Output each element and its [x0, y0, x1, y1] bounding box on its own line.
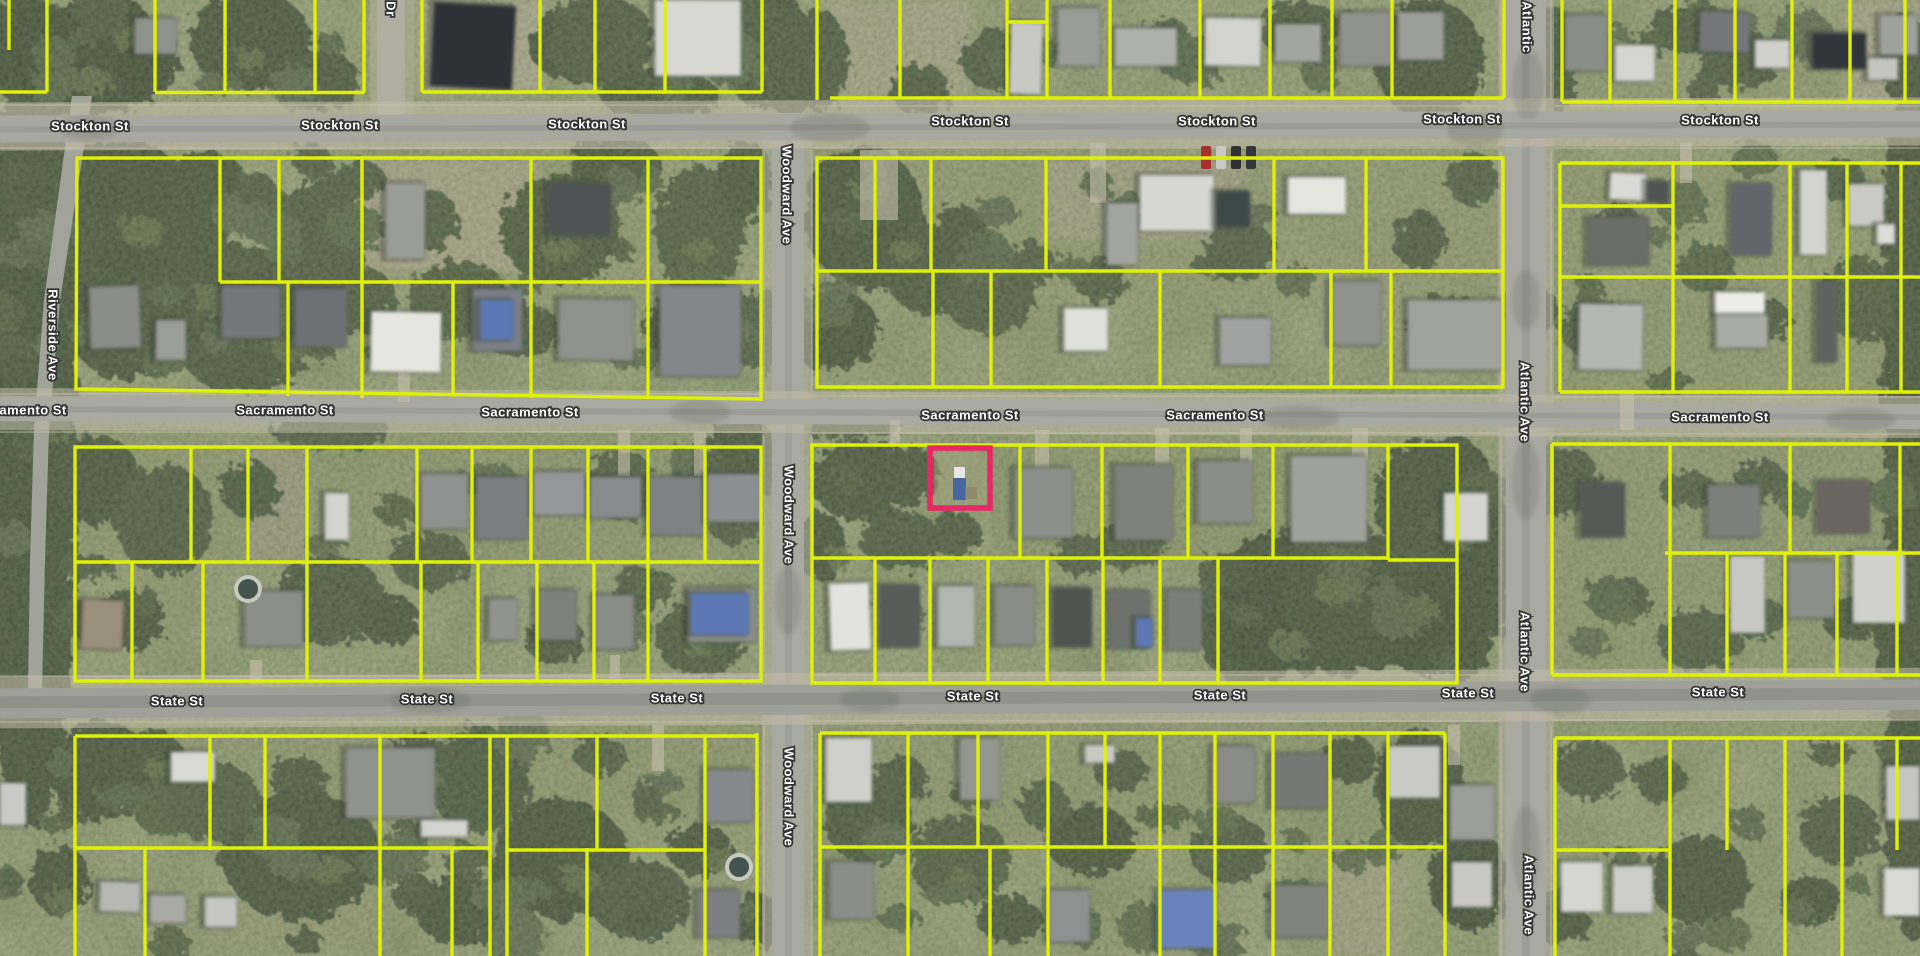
svg-text:State St: State St: [1692, 684, 1745, 699]
svg-text:e Dr: e Dr: [384, 0, 399, 17]
svg-text:Stockton St: Stockton St: [51, 118, 129, 133]
svg-text:Atlantic Ave: Atlantic Ave: [1518, 612, 1533, 692]
svg-text:Riverside Ave: Riverside Ave: [46, 289, 61, 381]
svg-text:Woodward Ave: Woodward Ave: [780, 146, 795, 245]
svg-text:Stockton St: Stockton St: [301, 117, 379, 132]
svg-text:Atlantic: Atlantic: [1520, 1, 1535, 53]
svg-text:Stockton St: Stockton St: [1178, 113, 1256, 128]
svg-text:Atlantic Ave: Atlantic Ave: [1518, 362, 1533, 442]
svg-text:Woodward Ave: Woodward Ave: [782, 466, 797, 565]
svg-text:Sacramento St: Sacramento St: [0, 402, 67, 417]
svg-text:Stockton St: Stockton St: [931, 113, 1009, 128]
svg-text:Sacramento St: Sacramento St: [921, 407, 1019, 422]
svg-text:Stockton St: Stockton St: [1423, 111, 1501, 126]
svg-text:Sacramento St: Sacramento St: [481, 404, 579, 419]
svg-text:State St: State St: [1194, 687, 1247, 702]
svg-text:State St: State St: [401, 691, 454, 706]
svg-text:State St: State St: [1442, 685, 1495, 700]
svg-text:Stockton St: Stockton St: [548, 116, 626, 131]
svg-text:Atlantic Ave: Atlantic Ave: [1522, 855, 1537, 935]
svg-text:State St: State St: [947, 688, 1000, 703]
svg-text:Sacramento St: Sacramento St: [1671, 409, 1769, 424]
svg-text:State St: State St: [651, 690, 704, 705]
svg-text:State St: State St: [151, 693, 204, 708]
svg-text:Sacramento St: Sacramento St: [1166, 407, 1264, 422]
svg-text:Stockton St: Stockton St: [1681, 112, 1759, 127]
svg-text:Sacramento St: Sacramento St: [236, 402, 334, 417]
svg-text:Woodward Ave: Woodward Ave: [782, 748, 797, 847]
